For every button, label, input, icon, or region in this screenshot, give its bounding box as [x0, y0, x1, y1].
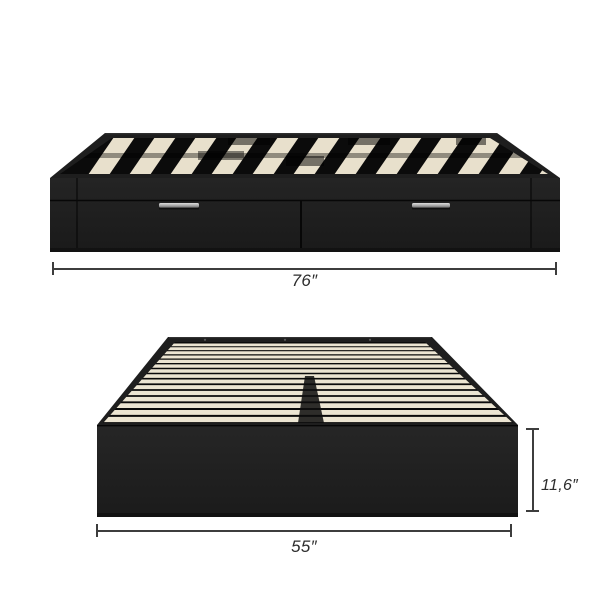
width-dimension-label-55: 55″	[96, 537, 512, 557]
dimension-line	[532, 428, 534, 512]
width-dimension-label-76: 76″	[52, 271, 557, 291]
dimension-tick-right	[510, 524, 512, 537]
product-dimension-diagram: 76″ 55″ 11,6″	[0, 0, 600, 600]
width-dimension-line-55	[96, 524, 512, 537]
bed-side-view-with-drawers-illustration	[48, 130, 560, 256]
height-dimension-label: 11,6″	[541, 477, 578, 495]
dimension-tick-bottom	[526, 510, 539, 512]
dimension-line	[96, 530, 512, 532]
bed-front-view-illustration	[85, 330, 535, 522]
dimension-line	[52, 268, 557, 270]
height-dimension-line	[526, 428, 539, 512]
